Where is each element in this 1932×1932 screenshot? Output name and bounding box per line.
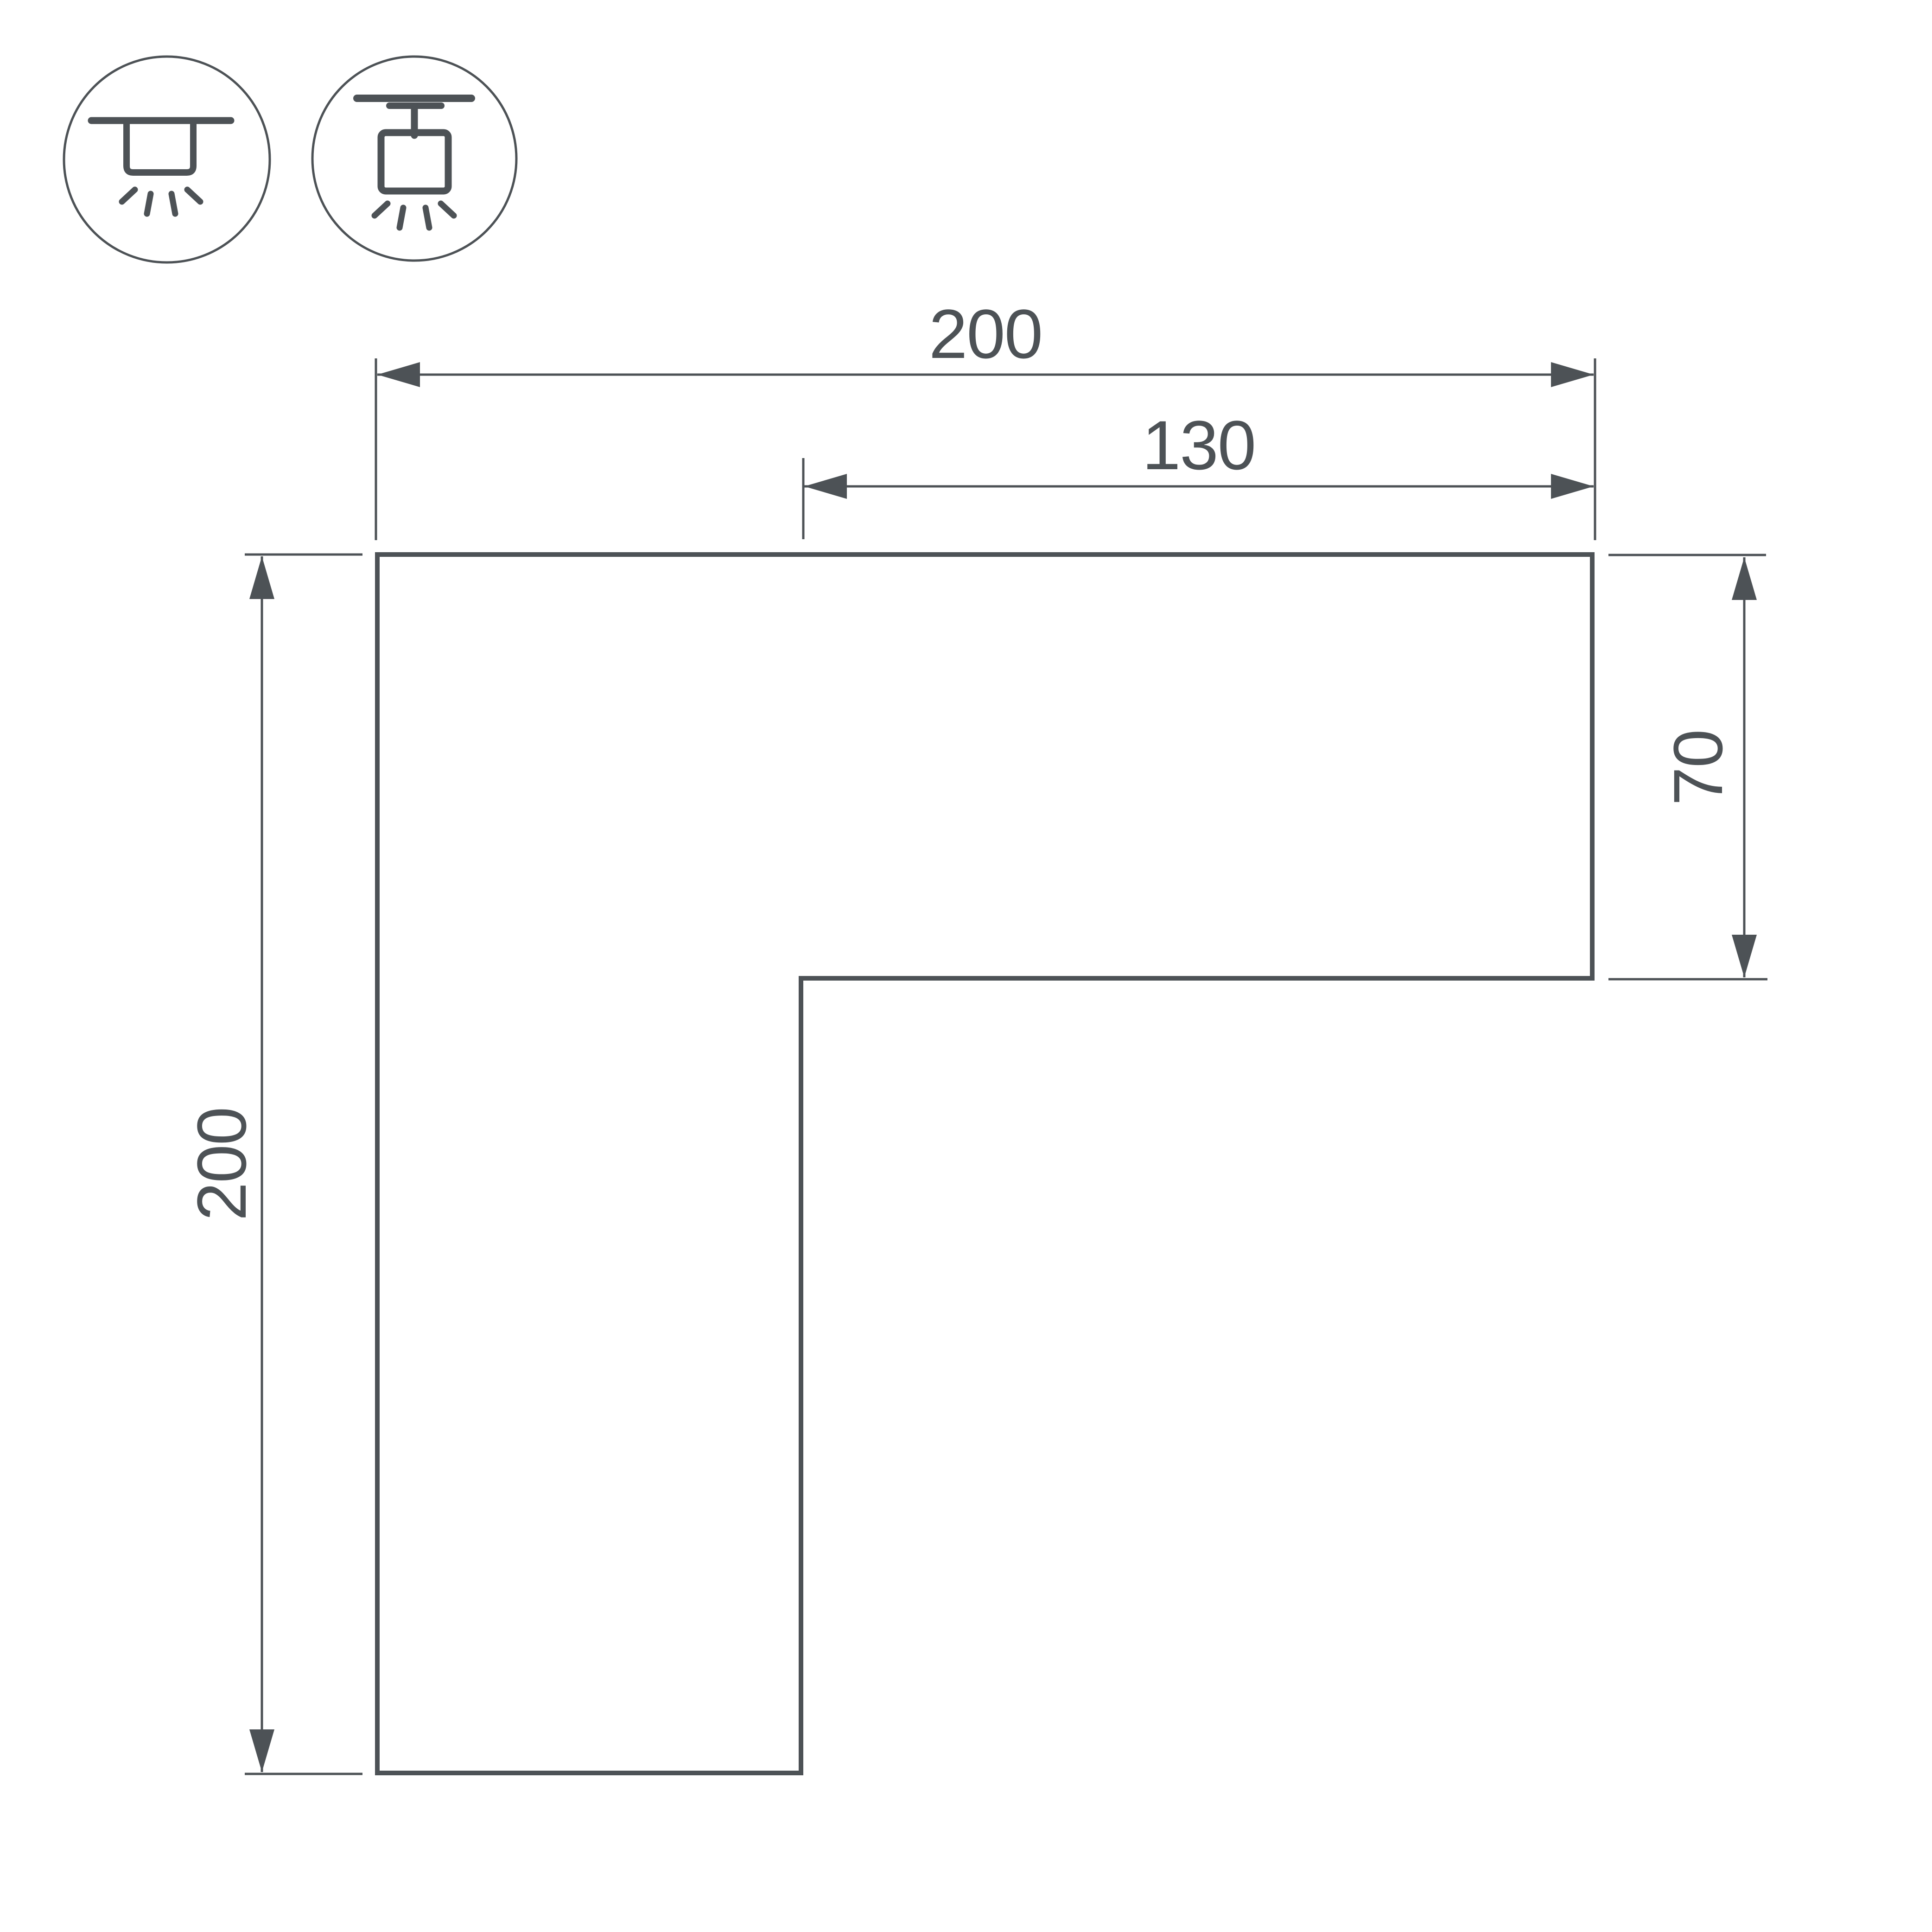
- dimension-label-inner-width: 130: [1142, 406, 1255, 484]
- arrowhead-right: [1551, 362, 1594, 387]
- dimension-inner-width: 130: [803, 406, 1594, 539]
- dimension-arm-height: 70: [1608, 555, 1767, 979]
- dimension-drawing: 200 130 200 70: [0, 0, 1932, 1932]
- arrowhead-down: [1732, 935, 1757, 977]
- dimension-overall-width: 200: [376, 295, 1595, 540]
- arrowhead-up: [1732, 557, 1757, 600]
- mount-type-badges: [64, 57, 516, 262]
- technical-drawing-page: 200 130 200 70: [0, 0, 1932, 1932]
- dimension-overall-height: 200: [183, 555, 362, 1774]
- arrowhead-left: [377, 362, 420, 387]
- arrowhead-left: [804, 474, 847, 499]
- surface-mount-luminaire-icon: [64, 57, 270, 262]
- dimension-label-overall-width: 200: [929, 295, 1042, 373]
- light-ray: [172, 194, 175, 214]
- arrowhead-down: [249, 1729, 274, 1772]
- arrowhead-right: [1551, 474, 1594, 499]
- track-mount-luminaire-icon: [312, 57, 516, 261]
- light-ray: [426, 208, 429, 228]
- light-ray: [147, 194, 151, 214]
- dimension-label-arm-height: 70: [1659, 730, 1737, 806]
- dimension-label-overall-height: 200: [183, 1108, 261, 1221]
- light-ray: [400, 208, 403, 228]
- arrowhead-up: [249, 556, 274, 599]
- badge-circle: [312, 57, 516, 261]
- l-profile-outline: [377, 555, 1592, 1773]
- badge-circle: [64, 57, 270, 262]
